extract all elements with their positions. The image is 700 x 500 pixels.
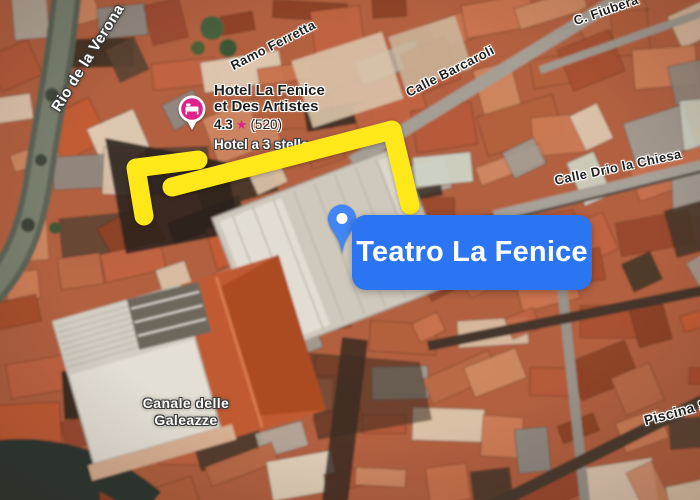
hotel-rating: 4.3 ★ (520) xyxy=(214,117,325,133)
hotel-name-line2: et Des Artistes xyxy=(214,99,325,115)
destination-label[interactable]: Teatro La Fenice xyxy=(352,215,592,290)
rating-value: 4.3 xyxy=(214,117,233,133)
hotel-category: Hotel a 3 stelle xyxy=(214,137,325,153)
hotel-pin-icon[interactable] xyxy=(176,93,208,133)
review-count: (520) xyxy=(250,117,282,133)
satellite-map[interactable]: Rio de la Verona Ramo Ferretta Calle Bar… xyxy=(0,0,700,500)
destination-label-text: Teatro La Fenice xyxy=(356,236,588,269)
hotel-name-line1: Hotel La Fenice xyxy=(214,83,325,99)
star-icon: ★ xyxy=(236,117,248,133)
hotel-label[interactable]: Hotel La Fenice et Des Artistes 4.3 ★ (5… xyxy=(214,83,325,153)
